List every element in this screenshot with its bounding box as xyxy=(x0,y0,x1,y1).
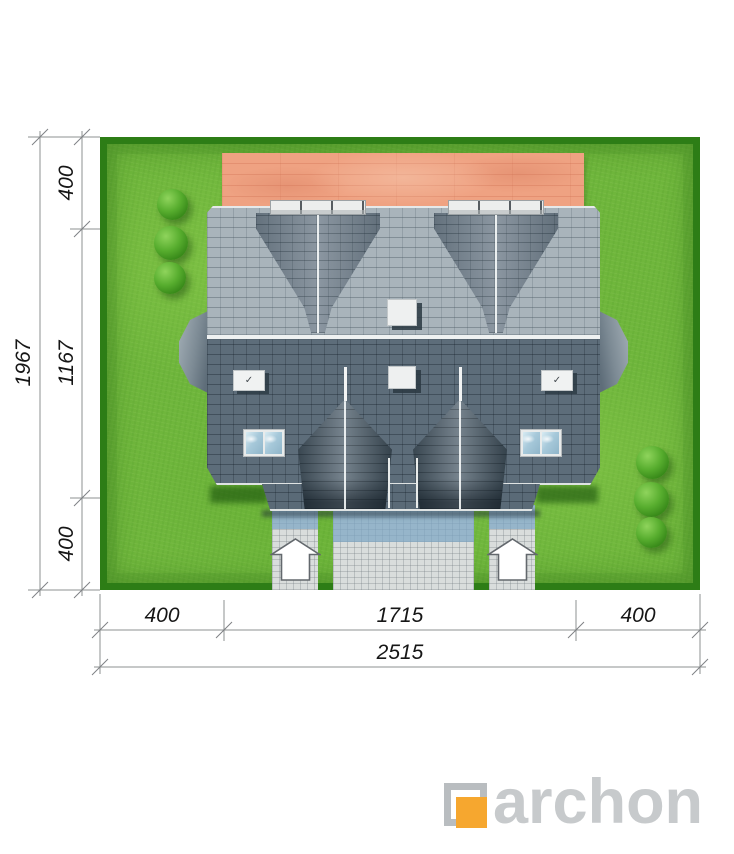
archon-logo: archon xyxy=(440,766,730,838)
porch-post-right xyxy=(416,458,418,508)
skylight-pane xyxy=(246,432,263,454)
bush-left-2 xyxy=(154,226,188,260)
roof-shadow-left xyxy=(210,486,268,503)
dim-label-left-total: 1967 xyxy=(12,338,35,386)
balcony-railing-left xyxy=(270,200,366,215)
driveway xyxy=(333,505,474,590)
roof-shadow-right xyxy=(536,486,598,503)
bush-left-1 xyxy=(157,189,188,220)
chimney-lower xyxy=(388,366,416,389)
hatch-handle-icon: ✓ xyxy=(553,376,561,386)
site-plan-canvas: ✓ ✓ 1967 400 1167 400 400 1715 400 xyxy=(0,0,734,854)
skylight-pane xyxy=(542,432,559,454)
bush-left-3 xyxy=(154,262,186,294)
porch-post-left xyxy=(388,458,390,508)
logo-square-orange-icon xyxy=(456,797,487,828)
dim-label-bottom-seg-left: 400 xyxy=(144,604,179,627)
dim-label-left-seg-mid: 1167 xyxy=(55,339,78,385)
logo-text: archon xyxy=(493,771,703,834)
skylight-pair-left xyxy=(243,429,285,457)
bush-right-2 xyxy=(634,482,669,517)
dim-label-bottom-seg-right: 400 xyxy=(620,604,655,627)
cone-ridge-line xyxy=(459,399,461,509)
skylight-pane xyxy=(265,432,282,454)
cone-ridge-line xyxy=(344,399,346,509)
bush-right-3 xyxy=(636,517,667,548)
entrance-arrow-left-icon xyxy=(270,538,321,581)
dormer-ridge-line xyxy=(495,213,497,333)
finial-right xyxy=(459,367,462,401)
bush-right-1 xyxy=(636,446,669,479)
skylight-pane xyxy=(523,432,540,454)
chimney-upper xyxy=(387,299,417,326)
eave-shadow xyxy=(262,510,540,517)
entrance-arrow-right-icon xyxy=(487,538,538,581)
roof-ridge-line xyxy=(207,335,600,339)
roof-south-slope xyxy=(207,339,600,485)
dim-label-bottom-total: 2515 xyxy=(376,641,424,664)
finial-left xyxy=(344,367,347,401)
roof-hatch-right: ✓ xyxy=(541,370,573,391)
dim-label-bottom-seg-mid: 1715 xyxy=(377,604,424,627)
balcony-railing-right xyxy=(448,200,544,215)
hatch-handle-icon: ✓ xyxy=(245,376,253,386)
skylight-pair-right xyxy=(520,429,562,457)
dim-label-left-seg-top: 400 xyxy=(55,165,78,200)
dim-label-left-seg-bottom: 400 xyxy=(55,526,78,561)
dormer-ridge-line xyxy=(317,213,319,333)
roof-hatch-left: ✓ xyxy=(233,370,265,391)
